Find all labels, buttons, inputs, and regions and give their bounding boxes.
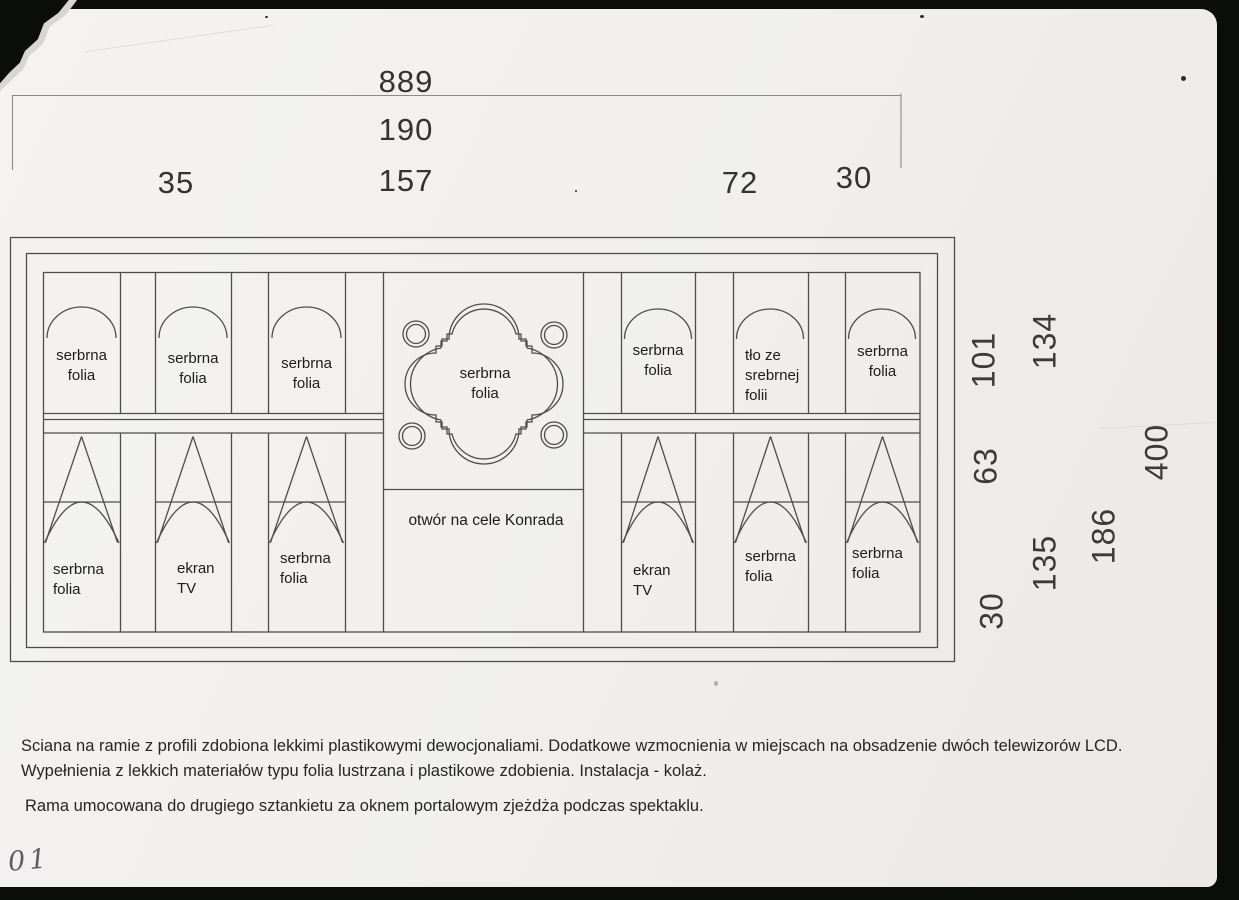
note-line-2: Wypełnienia z lekkich materiałów typu fo… — [21, 762, 707, 781]
dimension-lines — [12, 94, 901, 171]
note-line-1: Sciana na ramie z profili zdobiona lekki… — [21, 737, 1122, 756]
panel-label-lower-4: ekran TV — [633, 561, 671, 601]
opening-label: otwór na cele Konrada — [386, 511, 586, 531]
dim-157: 157 — [377, 163, 435, 199]
dim-63: 63 — [968, 447, 1005, 485]
scanned-drawing-page: { "dims_top": ["889", "190", "157", "35"… — [0, 0, 1239, 900]
panel-label-upper-6: tło ze srebrnej folii — [745, 346, 799, 405]
panel-label-lower-6: serbrna folia — [852, 544, 903, 584]
dim-186: 186 — [1086, 508, 1123, 564]
panel-dividers — [121, 273, 846, 633]
dim-30-top: 30 — [828, 160, 880, 196]
dim-30-right: 30 — [974, 592, 1011, 630]
panel-label-lower-1: serbrna folia — [53, 560, 104, 600]
panel-label-lower-3: serbrna folia — [280, 549, 331, 589]
panel-label-upper-5: serbrna folia — [621, 341, 695, 381]
panel-label-upper-3: serbrna folia — [268, 354, 345, 394]
handwritten-page-number: 01 — [7, 843, 52, 878]
panel-label-lower-5: serbrna folia — [745, 547, 796, 587]
dim-101: 101 — [966, 332, 1003, 388]
rail-band — [44, 414, 921, 434]
dim-400: 400 — [1139, 424, 1176, 480]
dim-total-width: 889 — [377, 64, 435, 100]
panel-label-quatrefoil: serbrna folia — [423, 364, 547, 404]
center-section-borders — [384, 273, 584, 633]
note-line-3: Rama umocowana do drugiego sztankietu za… — [25, 797, 704, 816]
panel-label-upper-2: serbrna folia — [155, 349, 231, 389]
panel-label-upper-7: serbrna folia — [845, 342, 920, 382]
panel-label-lower-2: ekran TV — [177, 559, 215, 599]
dim-135: 135 — [1027, 535, 1064, 591]
frame-outline — [11, 238, 955, 662]
dim-134: 134 — [1027, 313, 1064, 369]
dim-190: 190 — [377, 112, 435, 148]
panel-label-upper-1: serbrna folia — [43, 346, 120, 386]
dim-72: 72 — [714, 165, 766, 201]
dim-35: 35 — [150, 165, 202, 201]
round-arches — [47, 307, 916, 339]
